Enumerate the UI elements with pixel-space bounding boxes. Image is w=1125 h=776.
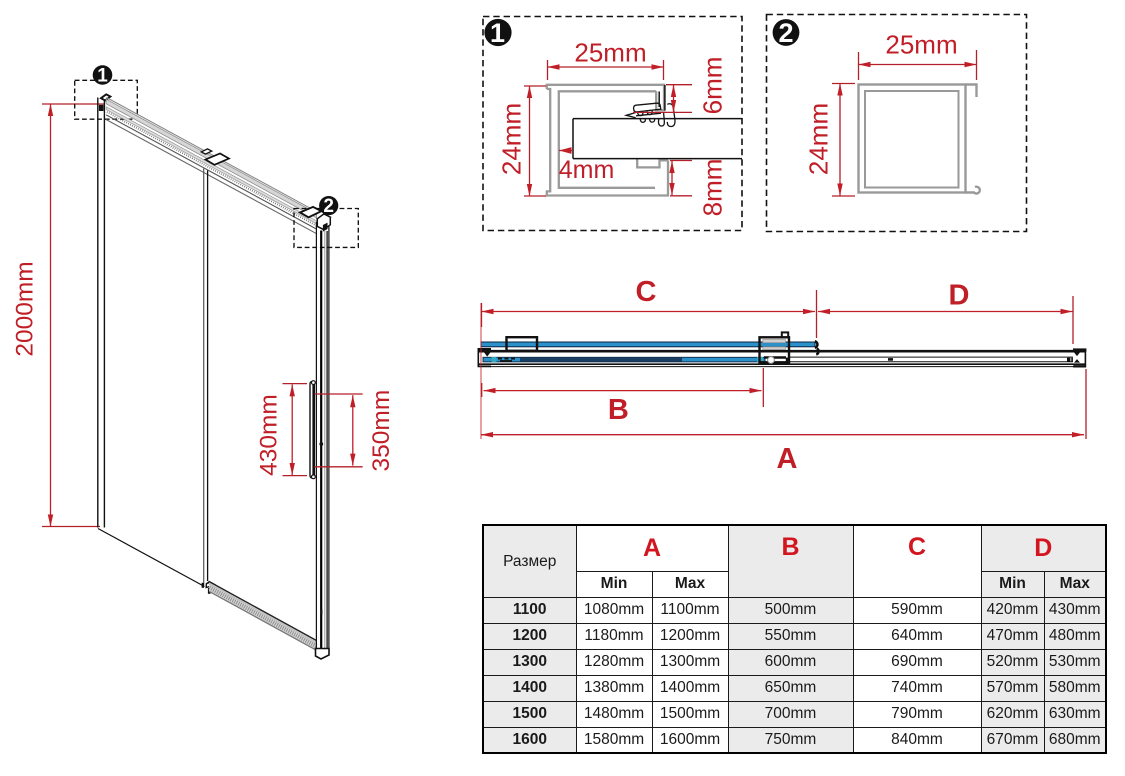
svg-text:24mm: 24mm [497, 103, 527, 175]
svg-text:C: C [636, 276, 657, 308]
svg-text:8mm: 8mm [698, 159, 728, 217]
svg-text:2: 2 [778, 18, 793, 48]
svg-text:430mm: 430mm [255, 394, 282, 476]
svg-text:24mm: 24mm [803, 103, 833, 175]
svg-text:25mm: 25mm [885, 30, 957, 60]
svg-text:4mm: 4mm [559, 156, 615, 184]
svg-text:350mm: 350mm [368, 390, 395, 472]
svg-text:A: A [777, 443, 798, 475]
svg-text:25mm: 25mm [574, 38, 646, 68]
svg-text:D: D [949, 280, 970, 312]
svg-text:2000mm: 2000mm [12, 261, 39, 356]
svg-text:1: 1 [97, 66, 108, 87]
svg-text:6mm: 6mm [698, 57, 728, 115]
svg-text:B: B [608, 394, 629, 426]
svg-text:1: 1 [490, 18, 505, 48]
